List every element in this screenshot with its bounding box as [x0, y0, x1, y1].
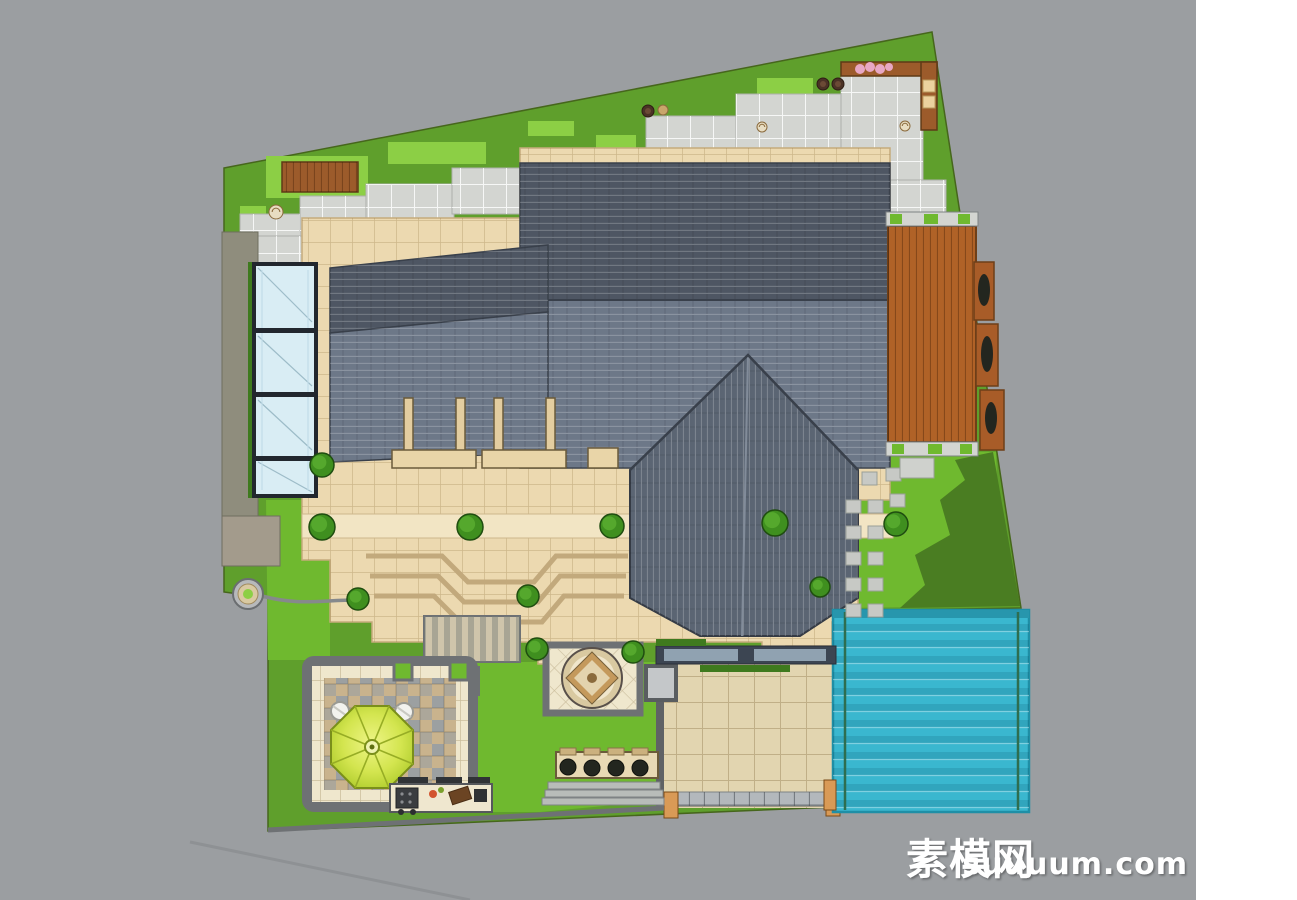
stepping-stone [890, 494, 905, 507]
plant-pot-rim [645, 108, 651, 114]
front-window-pane [754, 649, 826, 661]
stepping-pad-large [900, 458, 934, 478]
shrub-highlight [520, 588, 532, 600]
stepping-stone [846, 604, 861, 617]
stepping-stone [846, 526, 861, 539]
gate-post-west [664, 792, 678, 818]
patio-grass-tile [394, 662, 412, 680]
gate-brick-joints [678, 792, 826, 806]
deck-plank-lines [888, 226, 976, 442]
main-roof-upper-texture [520, 163, 890, 300]
parasol-umbrella [331, 706, 413, 788]
pergola-pier [588, 448, 618, 468]
garden-bench [282, 162, 358, 192]
pale-grass-patch [528, 121, 574, 136]
counter-back-panels [398, 777, 490, 784]
pergola-beam [392, 450, 476, 468]
spiral-ornament-icon [900, 121, 910, 131]
page-margin [1196, 0, 1297, 900]
clay-pot-icon [658, 105, 668, 115]
shrub-highlight [625, 644, 637, 656]
counter-item-fruit [438, 787, 444, 793]
stone-wall-block [222, 516, 280, 566]
pergola-post [404, 398, 413, 456]
driveway-grid [660, 650, 832, 808]
stepping-stone [868, 578, 883, 591]
stepping-stone [846, 552, 861, 565]
plant-pot-rim [835, 81, 841, 87]
west-wing-lower-texture [330, 312, 548, 462]
spiral-ornament-icon [269, 205, 283, 219]
grill-wheel [398, 809, 404, 815]
stepping-stone [868, 526, 883, 539]
shrub-highlight [602, 516, 616, 530]
counter-item-bowl [429, 790, 437, 798]
pergola-post [456, 398, 465, 456]
conservatory [252, 262, 318, 498]
bench-plank-lines [282, 162, 358, 192]
spiral-ornament-icon [757, 122, 767, 132]
stepping-stone [862, 472, 877, 485]
stone-ramp-bands [424, 616, 520, 662]
bbq-counter [390, 777, 492, 815]
hedge-strip-front [656, 639, 706, 646]
stepping-stone [846, 578, 861, 591]
umbrella-pole [370, 745, 375, 750]
swimming-pool [824, 610, 1029, 812]
garden-steps [542, 782, 664, 805]
pool-coping-edge [833, 610, 1029, 618]
shrub-highlight [886, 514, 900, 528]
shrub-highlight [764, 512, 780, 528]
grill-wheel [410, 809, 416, 815]
shrub-highlight [529, 641, 541, 653]
shrub-highlight [350, 591, 362, 603]
pool-ladder [824, 780, 836, 810]
stepping-stone [868, 552, 883, 565]
site-plan-image: 素模网 suuuum.com [0, 0, 1297, 900]
pergola-post [494, 398, 503, 456]
stepping-stone [886, 468, 901, 481]
pool-ripple-bands [833, 610, 1029, 812]
pergola-beam [482, 450, 566, 468]
hedge-strip-front [700, 665, 790, 672]
front-window-pane [664, 649, 738, 661]
counter-sink [474, 789, 487, 802]
stepping-stone [846, 500, 861, 513]
planter-row [542, 748, 664, 805]
shrub-highlight [813, 580, 823, 590]
plant-pot-rim [820, 81, 826, 87]
utility-pad [646, 666, 676, 700]
grill [396, 788, 418, 808]
shrub-highlight [312, 455, 326, 469]
site-plan-canvas: 素模网 suuuum.com [0, 0, 1297, 900]
shrub-highlight [459, 516, 475, 532]
feature-center-grass [243, 589, 253, 599]
compass-hub [587, 673, 597, 683]
shrub-highlight [311, 516, 327, 532]
watermark-latin: suuuum.com [962, 847, 1188, 882]
pale-grass-patch [388, 142, 486, 164]
west-gable-wing [330, 245, 548, 462]
pergola-post [546, 398, 555, 456]
stepping-stone [868, 604, 883, 617]
patio-grass-tile [450, 662, 468, 680]
stepping-stone [868, 500, 883, 513]
paver-patch-grid [886, 180, 946, 214]
